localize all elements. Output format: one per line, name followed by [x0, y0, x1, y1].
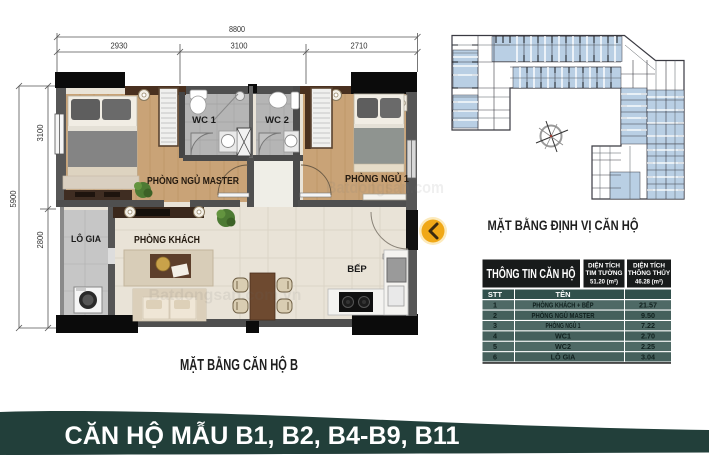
- svg-text:MẶT BẰNG CĂN HỘ B: MẶT BẰNG CĂN HỘ B: [180, 356, 298, 374]
- svg-text:THÔNG TIN CĂN HỘ: THÔNG TIN CĂN HỘ: [487, 266, 576, 281]
- svg-text:BẾP: BẾP: [347, 264, 367, 275]
- svg-text:DIỆN TÍCH: DIỆN TÍCH: [633, 261, 665, 270]
- svg-text:7.22: 7.22: [641, 321, 655, 330]
- svg-text:WC 1: WC 1: [192, 115, 216, 126]
- svg-text:DIỆN TÍCH: DIỆN TÍCH: [588, 261, 620, 270]
- svg-text:3100: 3100: [231, 41, 248, 51]
- svg-text:PHÒNG NGỦ 1: PHÒNG NGỦ 1: [546, 321, 581, 330]
- svg-text:51.20 (m²): 51.20 (m²): [590, 279, 618, 286]
- svg-text:TÊN: TÊN: [556, 290, 571, 299]
- svg-text:WC 2: WC 2: [265, 115, 289, 126]
- svg-text:Batdongsan.com.vn: Batdongsan.com.vn: [149, 287, 302, 304]
- svg-text:2800: 2800: [35, 231, 45, 248]
- svg-text:PHÒNG NGỦ MASTER: PHÒNG NGỦ MASTER: [532, 311, 596, 320]
- svg-text:2.70: 2.70: [641, 332, 655, 341]
- svg-text:THÔNG THỦY: THÔNG THỦY: [628, 268, 671, 277]
- svg-text:3100: 3100: [35, 124, 45, 141]
- svg-text:WC2: WC2: [555, 342, 571, 351]
- svg-text:2: 2: [493, 311, 497, 320]
- svg-text:21.57: 21.57: [639, 300, 657, 309]
- svg-text:1: 1: [493, 300, 497, 309]
- svg-text:LÔ GIA: LÔ GIA: [551, 352, 576, 361]
- svg-text:WC1: WC1: [555, 332, 571, 341]
- svg-text:Batdongsan.com: Batdongsan.com: [326, 178, 444, 197]
- svg-text:3: 3: [493, 321, 497, 330]
- svg-text:46.28 (m²): 46.28 (m²): [635, 279, 663, 286]
- svg-text:5900: 5900: [8, 190, 18, 207]
- svg-text:6: 6: [493, 352, 497, 361]
- svg-text:2710: 2710: [351, 41, 368, 51]
- svg-text:9.50: 9.50: [641, 311, 655, 320]
- svg-text:TIM TƯỜNG: TIM TƯỜNG: [585, 268, 622, 277]
- svg-text:2930: 2930: [111, 41, 128, 51]
- svg-text:CĂN HỘ MẪU B1, B2, B4-B9, B11: CĂN HỘ MẪU B1, B2, B4-B9, B11: [65, 420, 460, 450]
- svg-text:2.25: 2.25: [641, 342, 655, 351]
- svg-text:MẶT BẰNG ĐỊNH VỊ CĂN HỘ: MẶT BẰNG ĐỊNH VỊ CĂN HỘ: [488, 218, 639, 233]
- svg-text:PHÒNG KHÁCH + BẾP: PHÒNG KHÁCH + BẾP: [533, 299, 594, 309]
- svg-text:4: 4: [493, 332, 497, 341]
- svg-text:STT: STT: [488, 290, 503, 299]
- svg-text:PHÒNG NGỦ MASTER: PHÒNG NGỦ MASTER: [147, 174, 239, 187]
- svg-text:PHÒNG KHÁCH: PHÒNG KHÁCH: [134, 233, 200, 246]
- svg-text:8800: 8800: [229, 24, 245, 34]
- svg-text:3.04: 3.04: [641, 352, 655, 361]
- svg-text:LÔ GIA: LÔ GIA: [71, 233, 101, 244]
- svg-text:5: 5: [493, 342, 497, 351]
